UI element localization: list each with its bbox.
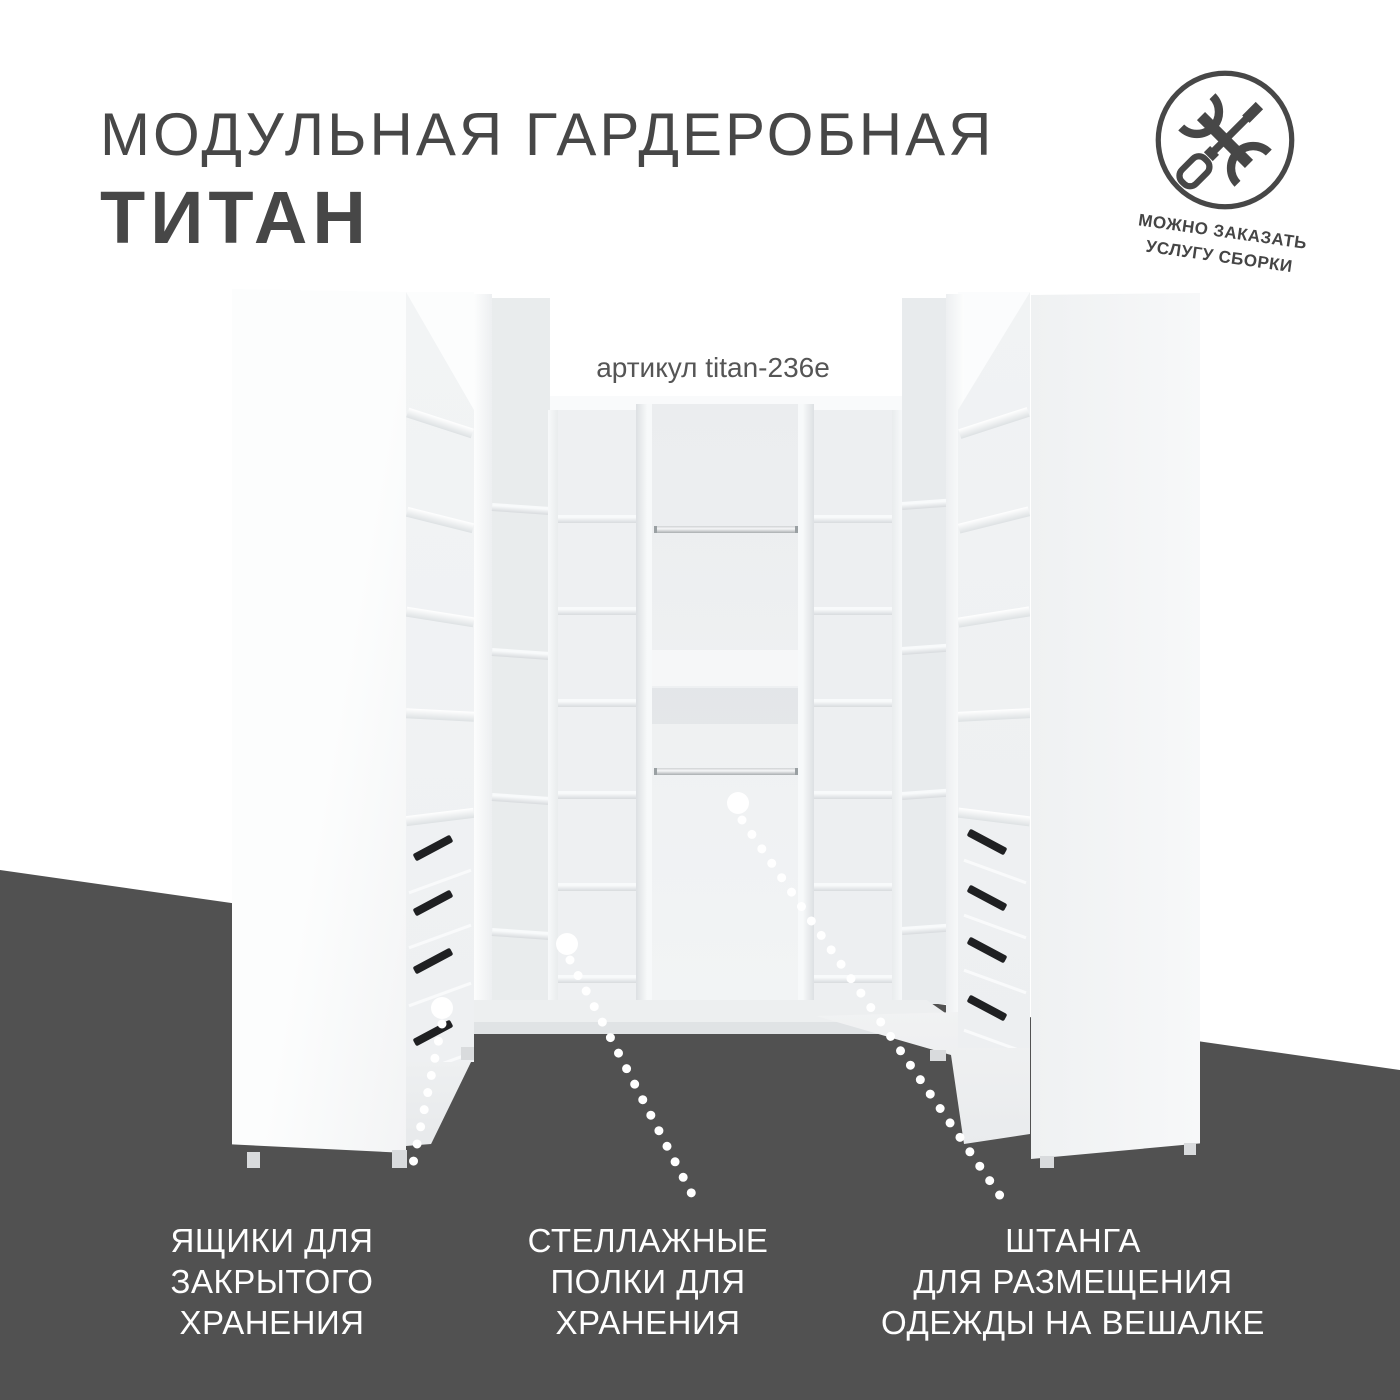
callout-line: ПОЛКИ ДЛЯ (488, 1261, 808, 1302)
leader-line-rod (742, 820, 1003, 1200)
callout-line: ШТАНГА (878, 1220, 1268, 1261)
marker-dot-rod (727, 792, 749, 814)
assembly-badge-text: МОЖНО ЗАКАЗАТЬ УСЛУГУ СБОРКИ (1089, 201, 1353, 287)
leader-line-shelves (570, 960, 695, 1200)
sku-label: артикул titan-236e (596, 352, 830, 384)
callout-drawers-label: ЯЩИКИ ДЛЯ ЗАКРЫТОГО ХРАНЕНИЯ (112, 1220, 432, 1343)
assembly-badge: МОЖНО ЗАКАЗАТЬ УСЛУГУ СБОРКИ (1076, 64, 1366, 294)
marker-dot-drawers (431, 997, 453, 1019)
callout-line: ДЛЯ РАЗМЕЩЕНИЯ (878, 1261, 1268, 1302)
page-title: МОДУЛЬНАЯ ГАРДЕРОБНАЯ (100, 100, 994, 169)
callout-line: ЯЩИКИ ДЛЯ (112, 1220, 432, 1261)
callout-line: ХРАНЕНИЯ (488, 1302, 808, 1343)
wrench-screwdriver-icon (1152, 67, 1298, 213)
marker-dot-shelves (556, 933, 578, 955)
callout-line: СТЕЛЛАЖНЫЕ (488, 1220, 808, 1261)
leader-line-drawers (410, 1024, 442, 1178)
callout-shelves-label: СТЕЛЛАЖНЫЕ ПОЛКИ ДЛЯ ХРАНЕНИЯ (488, 1220, 808, 1343)
callout-line: ХРАНЕНИЯ (112, 1302, 432, 1343)
callout-line: ЗАКРЫТОГО (112, 1261, 432, 1302)
header: МОДУЛЬНАЯ ГАРДЕРОБНАЯ ТИТАН (100, 100, 994, 260)
product-name: ТИТАН (100, 175, 994, 260)
product-card: МОДУЛЬНАЯ ГАРДЕРОБНАЯ ТИТАН МОЖНО ЗАКАЗА… (0, 0, 1400, 1400)
callout-rod-label: ШТАНГА ДЛЯ РАЗМЕЩЕНИЯ ОДЕЖДЫ НА ВЕШАЛКЕ (878, 1220, 1268, 1343)
callout-line: ОДЕЖДЫ НА ВЕШАЛКЕ (878, 1302, 1268, 1343)
